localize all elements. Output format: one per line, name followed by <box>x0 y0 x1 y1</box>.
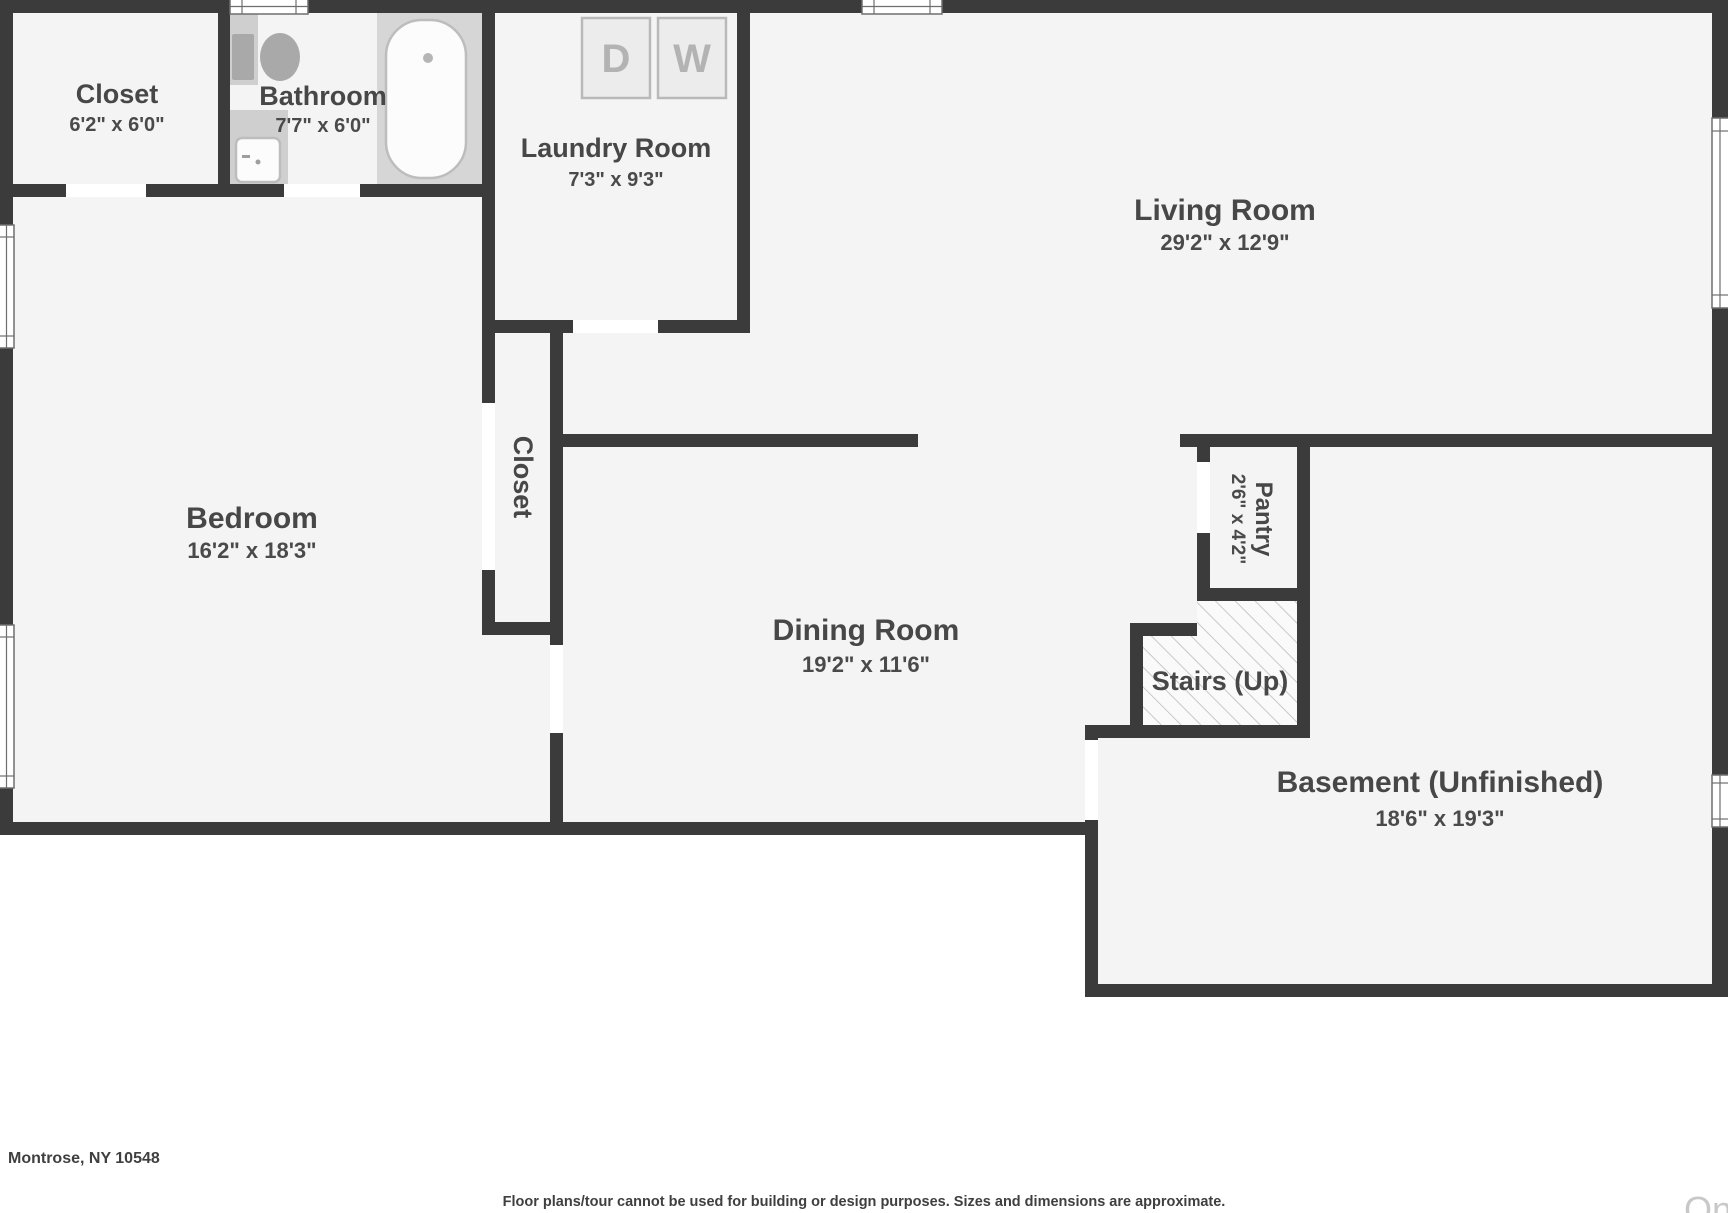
wall-pantry-stairs-right <box>1297 434 1310 738</box>
door-bedroom-closet <box>482 403 495 570</box>
label-stairs: Stairs (Up) <box>1152 666 1289 696</box>
wall-bedroom-closet-bottom <box>482 622 563 635</box>
window-bedroom-lower <box>0 625 14 788</box>
dims-laundry: 7'3" x 9'3" <box>568 169 663 191</box>
toilet-tank <box>232 34 254 80</box>
label-dining: Dining Room <box>773 614 960 647</box>
bathtub-basin <box>386 20 466 178</box>
label-closet-tl: Closet <box>76 79 159 109</box>
label-pantry: Pantry <box>1250 482 1277 557</box>
dims-living: 29'2" x 12'9" <box>1160 230 1289 255</box>
wall-pantry-bottom <box>1197 588 1310 601</box>
sink-icon <box>236 138 280 182</box>
label-closet-mid: Closet <box>508 436 538 519</box>
toilet-bowl <box>260 33 300 81</box>
watermark-logo: On <box>1684 1189 1728 1213</box>
label-laundry: Laundry Room <box>521 133 712 163</box>
wall-closet-bathroom-divider <box>218 0 230 197</box>
wall-basement-bottom <box>1085 984 1728 997</box>
pantry-label-group: Pantry 2'6" x 4'2" <box>1227 474 1277 564</box>
floor-plan-page: D W <box>0 0 1728 1213</box>
door-bedroom-dining <box>550 645 563 733</box>
washer-icon: W <box>658 18 726 98</box>
bathtub-icon <box>386 20 466 178</box>
bathtub-drain <box>423 53 433 63</box>
toilet-icon <box>232 33 300 81</box>
label-bedroom: Bedroom <box>186 502 318 535</box>
door-bathroom <box>284 184 360 197</box>
footer: Montrose, NY 10548 Floor plans/tour cann… <box>8 1150 1728 1213</box>
label-basement: Basement (Unfinished) <box>1277 766 1604 799</box>
wall-stairs-bottom <box>1085 725 1310 738</box>
dims-bathroom: 7'7" x 6'0" <box>275 115 370 137</box>
label-bathroom: Bathroom <box>259 81 387 111</box>
dims-pantry: 2'6" x 4'2" <box>1227 474 1248 564</box>
dims-basement: 18'6" x 19'3" <box>1375 806 1504 831</box>
door-laundry <box>573 320 658 333</box>
door-basement <box>1085 740 1098 820</box>
wall-stairs-step-vertical <box>1130 623 1143 738</box>
door-pantry <box>1197 462 1210 533</box>
window-top-living <box>862 0 942 14</box>
washer-letter: W <box>673 37 711 81</box>
dims-dining: 19'2" x 11'6" <box>802 652 930 677</box>
sink-faucet <box>242 155 250 158</box>
wall-bedroom-closet-right <box>550 333 563 635</box>
wall-living-basement-divider <box>1180 434 1728 447</box>
dryer-icon: D <box>582 18 650 98</box>
disclaimer-text: Floor plans/tour cannot be used for buil… <box>503 1194 1226 1210</box>
wall-laundry-left <box>482 0 495 333</box>
dryer-letter: D <box>602 37 631 81</box>
wall-dining-top-left-segment <box>563 434 918 447</box>
wall-laundry-right <box>737 0 750 333</box>
window-bedroom-upper <box>0 225 14 348</box>
floor-plan-drawing: D W <box>0 0 1728 1213</box>
dims-closet-tl: 6'2" x 6'0" <box>69 114 164 136</box>
window-top-left <box>230 0 308 14</box>
label-living: Living Room <box>1134 194 1316 227</box>
door-closet-tl <box>66 184 146 197</box>
dims-bedroom: 16'2" x 18'3" <box>187 538 316 563</box>
address-text: Montrose, NY 10548 <box>8 1150 160 1167</box>
sink-drain <box>256 160 261 165</box>
window-living-right <box>1712 118 1728 308</box>
wall-main-bottom <box>0 822 1098 835</box>
window-basement-right <box>1712 775 1728 827</box>
